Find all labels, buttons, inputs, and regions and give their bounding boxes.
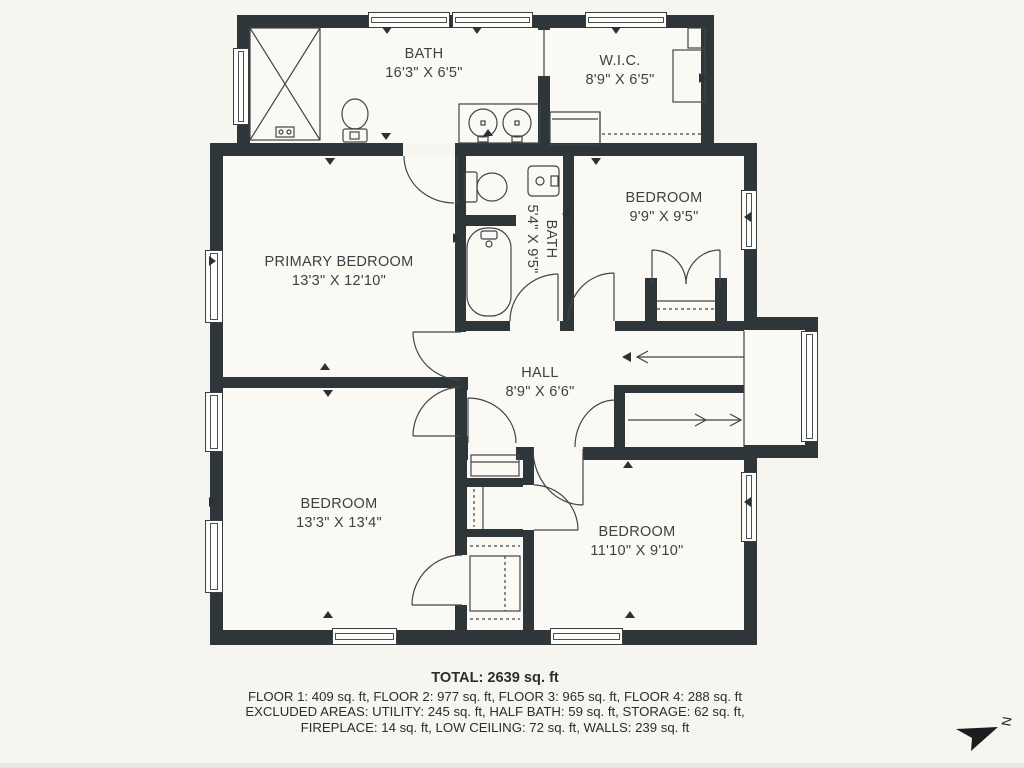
room-dims: 11'10" X 9'10"	[590, 542, 683, 561]
room-dims: 13'3" X 12'10"	[265, 272, 414, 291]
floor-areas: FLOOR 1: 409 sq. ft, FLOOR 2: 977 sq. ft…	[0, 689, 990, 705]
room-dims: 8'9" X 6'6"	[505, 383, 574, 402]
room-dims: 16'3" X 6'5"	[385, 64, 462, 83]
excluded-areas-2: FIREPLACE: 14 sq. ft, LOW CEILING: 72 sq…	[0, 720, 990, 736]
north-label: N	[998, 715, 1014, 727]
opening-marker-icon	[483, 129, 493, 136]
room-label-bedroom-sw: BEDROOM 13'3" X 13'4"	[296, 495, 382, 533]
opening-marker-icon	[611, 27, 621, 34]
opening-marker-icon	[323, 390, 333, 397]
closet-shelves	[652, 250, 720, 309]
room-dims: 5'4" X 9'5"	[522, 204, 541, 273]
opening-marker-icon	[209, 497, 216, 507]
wic-door-leaf	[540, 23, 548, 83]
room-label-wic: W.I.C. 8'9" X 6'5"	[585, 52, 654, 90]
opening-marker-icon	[699, 73, 706, 83]
room-dims: 13'3" X 13'4"	[296, 514, 382, 533]
opening-marker-icon	[323, 611, 333, 618]
room-dims: 8'9" X 6'5"	[585, 71, 654, 90]
opening-marker-icon	[382, 27, 392, 34]
opening-marker-icon	[325, 158, 335, 165]
opening-marker-icon	[472, 27, 482, 34]
room-name: W.I.C.	[585, 52, 654, 71]
bathtub-icon	[467, 228, 511, 316]
room-name: BEDROOM	[296, 495, 382, 514]
opening-marker-icon	[744, 212, 751, 222]
opening-marker-icon	[623, 461, 633, 468]
room-label-bath-small: BATH 5'4" X 9'5"	[522, 204, 560, 273]
toilet-icon	[342, 99, 368, 142]
opening-marker-icon	[453, 233, 460, 243]
sink-icon	[528, 166, 559, 196]
room-label-hall: HALL 8'9" X 6'6"	[505, 364, 574, 402]
room-label-bedroom-ne: BEDROOM 9'9" X 9'5"	[625, 189, 702, 227]
opening-marker-icon	[744, 497, 751, 507]
double-vanity-icon	[459, 104, 540, 143]
stair-direction-arrow	[622, 331, 744, 447]
closet-shelves	[470, 455, 520, 619]
opening-marker-icon	[209, 256, 216, 266]
room-label-primary-bedroom: PRIMARY BEDROOM 13'3" X 12'10"	[265, 253, 414, 291]
area-summary: TOTAL: 2639 sq. ft FLOOR 1: 409 sq. ft, …	[0, 671, 990, 735]
room-name: PRIMARY BEDROOM	[265, 253, 414, 272]
shower-icon	[250, 28, 320, 140]
excluded-areas-1: EXCLUDED AREAS: UTILITY: 245 sq. ft, HAL…	[0, 704, 990, 720]
room-name: HALL	[505, 364, 574, 383]
opening-marker-icon	[381, 133, 391, 140]
room-label-bath-top: BATH 16'3" X 6'5"	[385, 45, 462, 83]
floor-plan: N BATH 16'3" X 6'5" W.I.C. 8'9" X 6'5" P…	[0, 0, 1024, 768]
opening-marker-icon	[562, 209, 569, 219]
room-name: BEDROOM	[625, 189, 702, 208]
room-name: BEDROOM	[590, 523, 683, 542]
opening-marker-icon	[625, 611, 635, 618]
toilet-icon	[465, 172, 507, 202]
room-name: BATH	[385, 45, 462, 64]
room-dims: 9'9" X 9'5"	[625, 208, 702, 227]
room-label-bedroom-se: BEDROOM 11'10" X 9'10"	[590, 523, 683, 561]
room-name: BATH	[541, 204, 560, 273]
opening-marker-icon	[591, 158, 601, 165]
opening-marker-icon	[320, 363, 330, 370]
total-area: TOTAL: 2639 sq. ft	[0, 671, 990, 687]
